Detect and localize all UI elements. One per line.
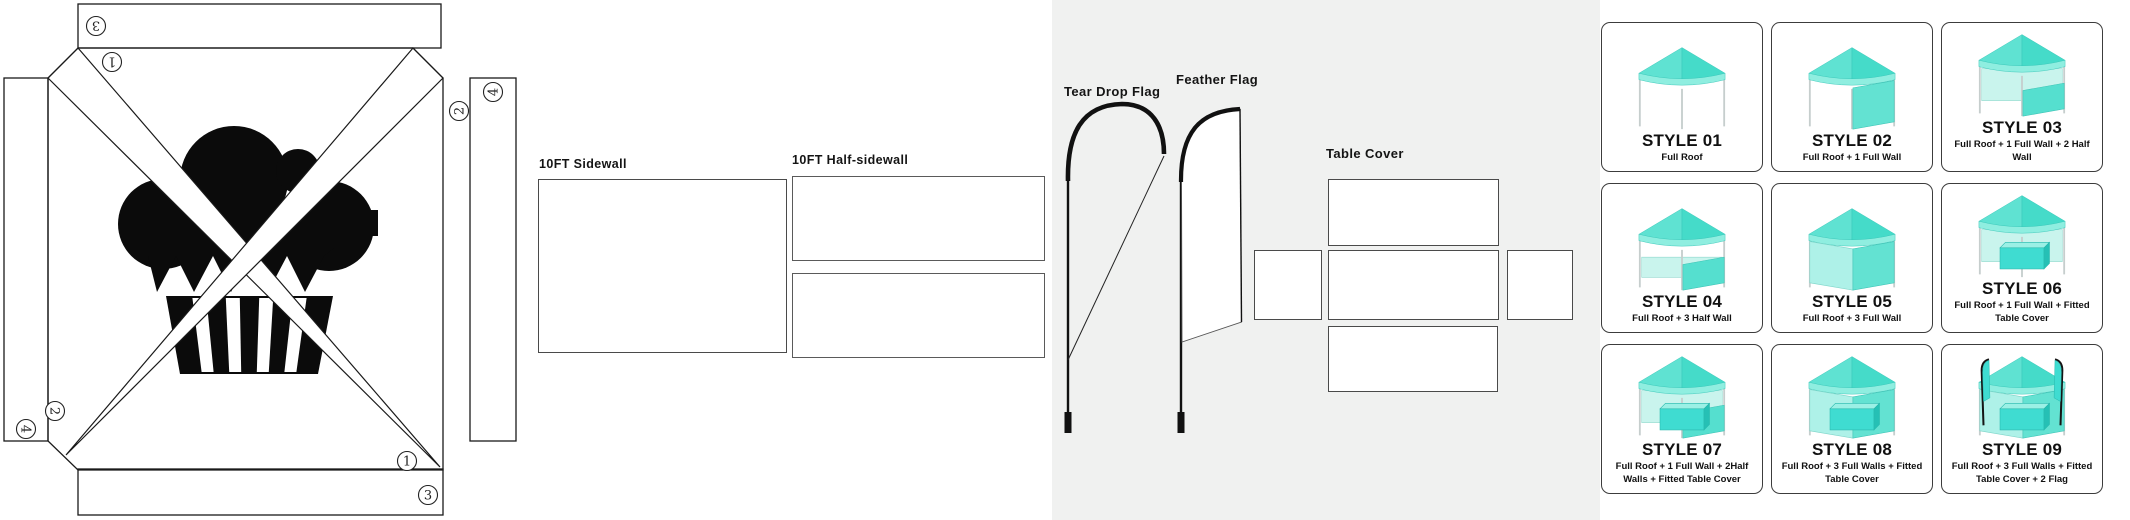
style-desc: Full Roof bbox=[1661, 152, 1702, 164]
style-title: STYLE 03 bbox=[1982, 119, 2062, 137]
table-cover-panel-bottom bbox=[1328, 326, 1498, 392]
style-title: STYLE 02 bbox=[1812, 132, 1892, 150]
style-title: STYLE 06 bbox=[1982, 280, 2062, 298]
table-cover-panel-top bbox=[1328, 179, 1499, 246]
svg-text:1: 1 bbox=[403, 455, 411, 470]
svg-text:1: 1 bbox=[108, 54, 116, 69]
tent-illustration bbox=[1963, 30, 2081, 118]
valance-strip-left bbox=[4, 78, 48, 441]
svg-text:2: 2 bbox=[47, 407, 62, 415]
style-desc: Full Roof + 3 Half Wall bbox=[1632, 313, 1732, 325]
style-title: STYLE 04 bbox=[1642, 293, 1722, 311]
panel-number-right-panel: 2 bbox=[450, 102, 469, 121]
svg-text:4: 4 bbox=[487, 88, 502, 96]
feather-flag-shape bbox=[1178, 109, 1242, 433]
style-title: STYLE 01 bbox=[1642, 132, 1722, 150]
teardrop-flag-shape bbox=[1065, 104, 1165, 433]
tent-illustration bbox=[1623, 204, 1741, 292]
sidewall-label: 10FT Sidewall bbox=[539, 157, 627, 171]
panel-number-bottom-strip: 3 bbox=[419, 486, 438, 505]
style-title: STYLE 07 bbox=[1642, 441, 1722, 459]
style-card-09[interactable]: STYLE 09 Full Roof + 3 Full Walls + Fitt… bbox=[1941, 344, 2103, 494]
style-desc: Full Roof + 1 Full Wall + 2 Half Wall bbox=[1947, 139, 2097, 164]
style-card-07[interactable]: STYLE 07 Full Roof + 1 Full Wall + 2Half… bbox=[1601, 344, 1763, 494]
canopy-product-infographic: 3 1 4 2 4 2 1 3 10FT Sidewall 10FT Half-… bbox=[0, 0, 2130, 520]
style-desc: Full Roof + 1 Full Wall bbox=[1803, 152, 1902, 164]
canopy-template-diagram: 3 1 4 2 4 2 1 3 bbox=[0, 0, 530, 520]
style-card-05[interactable]: STYLE 05 Full Roof + 3 Full Wall bbox=[1771, 183, 1933, 333]
table-cover-panel-center bbox=[1328, 250, 1499, 320]
svg-text:4: 4 bbox=[18, 425, 33, 433]
half-sidewall-template-box-1 bbox=[792, 176, 1045, 261]
style-desc: Full Roof + 3 Full Wall bbox=[1803, 313, 1902, 325]
style-desc: Full Roof + 3 Full Walls + Fitted Table … bbox=[1947, 461, 2097, 486]
panel-number-top-strip: 3 bbox=[87, 17, 106, 36]
table-cover-label: Table Cover bbox=[1326, 146, 1404, 161]
style-card-03[interactable]: STYLE 03 Full Roof + 1 Full Wall + 2 Hal… bbox=[1941, 22, 2103, 172]
valance-strip-right bbox=[470, 78, 516, 441]
valance-strip-bottom bbox=[78, 469, 443, 515]
tent-illustration bbox=[1963, 352, 2081, 440]
svg-text:3: 3 bbox=[424, 489, 432, 504]
panel-number-left-strip: 4 bbox=[17, 420, 36, 439]
table-cover-panel-right bbox=[1507, 250, 1573, 320]
tent-illustration bbox=[1793, 43, 1911, 131]
valance-strip-top bbox=[78, 4, 441, 48]
sidewall-template-box bbox=[538, 179, 787, 353]
panel-number-bottom-panel: 1 bbox=[398, 452, 417, 471]
style-title: STYLE 09 bbox=[1982, 441, 2062, 459]
style-title: STYLE 05 bbox=[1812, 293, 1892, 311]
tent-illustration bbox=[1623, 352, 1741, 440]
tent-illustration bbox=[1793, 352, 1911, 440]
svg-text:2: 2 bbox=[453, 107, 468, 115]
tent-illustration bbox=[1623, 43, 1741, 131]
style-options-grid: STYLE 01 Full Roof STYLE 02 Full Roof + … bbox=[1601, 22, 2130, 494]
half-sidewall-label: 10FT Half-sidewall bbox=[792, 153, 908, 167]
panel-number-right-strip: 4 bbox=[484, 83, 503, 102]
style-card-08[interactable]: STYLE 08 Full Roof + 3 Full Walls + Fitt… bbox=[1771, 344, 1933, 494]
svg-text:3: 3 bbox=[92, 18, 100, 33]
half-sidewall-template-box-2 bbox=[792, 273, 1045, 358]
panel-number-left-panel: 2 bbox=[46, 402, 65, 421]
style-desc: Full Roof + 3 Full Walls + Fitted Table … bbox=[1777, 461, 1927, 486]
style-card-02[interactable]: STYLE 02 Full Roof + 1 Full Wall bbox=[1771, 22, 1933, 172]
tent-illustration bbox=[1963, 191, 2081, 279]
style-card-04[interactable]: STYLE 04 Full Roof + 3 Half Wall bbox=[1601, 183, 1763, 333]
style-desc: Full Roof + 1 Full Wall + 2Half Walls + … bbox=[1607, 461, 1757, 486]
style-title: STYLE 08 bbox=[1812, 441, 1892, 459]
panel-number-top-panel: 1 bbox=[103, 53, 122, 72]
tent-illustration bbox=[1793, 204, 1911, 292]
style-card-06[interactable]: STYLE 06 Full Roof + 1 Full Wall + Fitte… bbox=[1941, 183, 2103, 333]
flags-diagram bbox=[1040, 30, 1280, 440]
style-card-01[interactable]: STYLE 01 Full Roof bbox=[1601, 22, 1763, 172]
style-desc: Full Roof + 1 Full Wall + Fitted Table C… bbox=[1947, 300, 2097, 325]
table-cover-panel-left bbox=[1254, 250, 1322, 320]
